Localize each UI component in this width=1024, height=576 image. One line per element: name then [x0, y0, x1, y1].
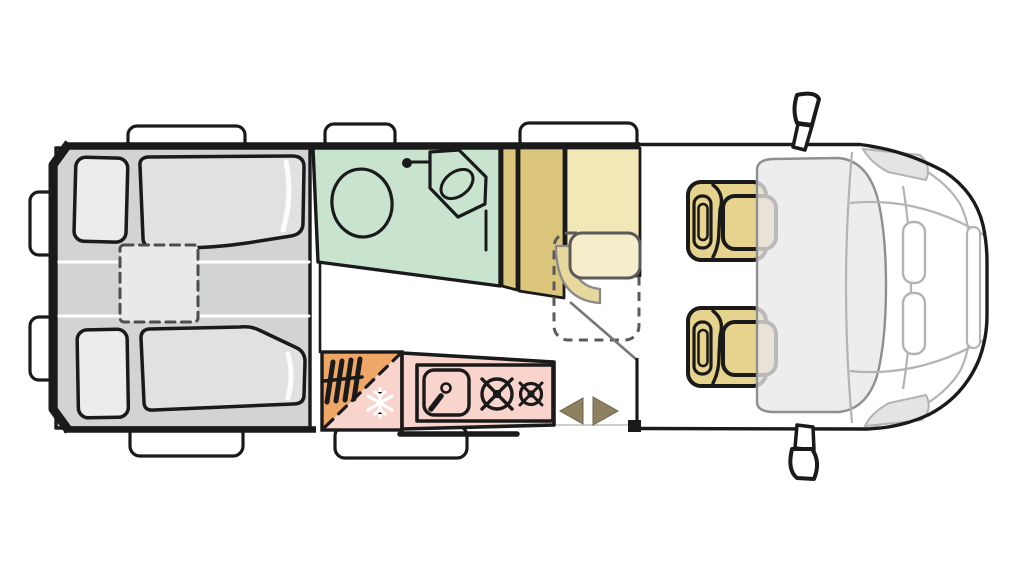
- arrow-right-icon: [593, 397, 618, 425]
- bulkhead-diagonal-line: [570, 302, 637, 360]
- dinette: [554, 233, 640, 421]
- grille-vent-icon: [903, 222, 925, 283]
- floorplan-svg: [0, 0, 1024, 576]
- dinette-seat-cushion: [570, 233, 640, 278]
- rear-bed-section: [56, 148, 310, 428]
- floorplan-page: [0, 0, 1024, 576]
- mirror-icon: [793, 94, 819, 150]
- pillow: [77, 329, 129, 418]
- headlight-icon: [863, 149, 928, 180]
- bumper-vent-icon: [967, 227, 980, 348]
- entry-door: [556, 397, 628, 425]
- fridge-heater-unit: [322, 352, 402, 430]
- mirror-icon: [790, 425, 817, 479]
- pillow: [74, 157, 128, 242]
- wardrobe-cabinet: [519, 148, 564, 298]
- mattress: [140, 156, 304, 248]
- door-post: [628, 420, 641, 432]
- dashboard: [757, 158, 886, 412]
- headlight-icon: [865, 395, 929, 426]
- arrow-left-icon: [560, 398, 583, 424]
- grille-vent-icon: [903, 293, 925, 354]
- bed-filler-cushion: [120, 245, 198, 322]
- windshield-line: [903, 186, 911, 389]
- mattress: [141, 327, 305, 410]
- wardrobe-cabinet: [502, 148, 517, 290]
- bathroom: [313, 148, 500, 352]
- kitchen-counter: [400, 353, 554, 434]
